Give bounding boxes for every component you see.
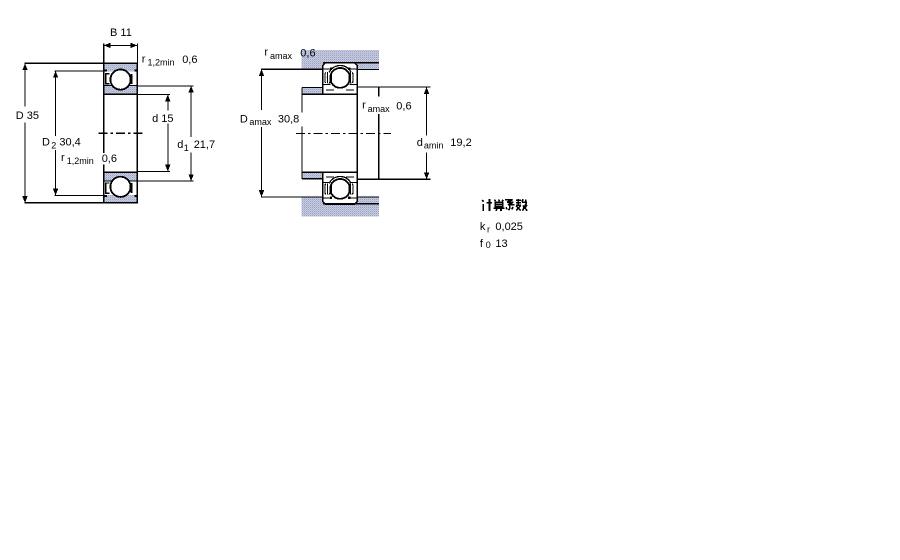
svg-text:0,025: 0,025 xyxy=(495,221,523,233)
svg-text:D 35: D 35 xyxy=(16,110,39,122)
svg-text:r: r xyxy=(142,54,146,66)
svg-text:r: r xyxy=(487,224,490,234)
svg-text:1,2min: 1,2min xyxy=(148,58,175,68)
svg-text:amax: amax xyxy=(249,117,272,127)
svg-text:1: 1 xyxy=(184,143,189,153)
svg-text:D: D xyxy=(240,114,248,126)
svg-text:B 11: B 11 xyxy=(110,27,132,39)
svg-text:21,7: 21,7 xyxy=(194,139,215,151)
svg-text:0: 0 xyxy=(486,240,491,250)
svg-text:d: d xyxy=(417,137,423,149)
svg-text:30,8: 30,8 xyxy=(278,113,299,125)
svg-text:d: d xyxy=(177,139,183,151)
svg-text:0,6: 0,6 xyxy=(182,54,197,66)
svg-text:19,2: 19,2 xyxy=(450,137,471,149)
svg-text:r: r xyxy=(362,99,366,111)
svg-text:0,6: 0,6 xyxy=(300,48,315,60)
svg-text:1,2min: 1,2min xyxy=(67,156,94,166)
svg-text:0,6: 0,6 xyxy=(102,153,117,165)
svg-text:D: D xyxy=(42,136,50,148)
svg-text:amin: amin xyxy=(424,141,444,151)
svg-text:30,4: 30,4 xyxy=(59,136,80,148)
svg-text:13: 13 xyxy=(495,238,507,250)
svg-text:0,6: 0,6 xyxy=(396,101,411,113)
svg-text:r: r xyxy=(264,47,268,59)
svg-text:2: 2 xyxy=(51,141,56,151)
svg-text:amax: amax xyxy=(368,104,391,114)
svg-text:k: k xyxy=(480,221,486,233)
svg-text:amax: amax xyxy=(270,51,293,61)
svg-text:d 15: d 15 xyxy=(152,113,173,125)
svg-text:r: r xyxy=(61,152,65,164)
